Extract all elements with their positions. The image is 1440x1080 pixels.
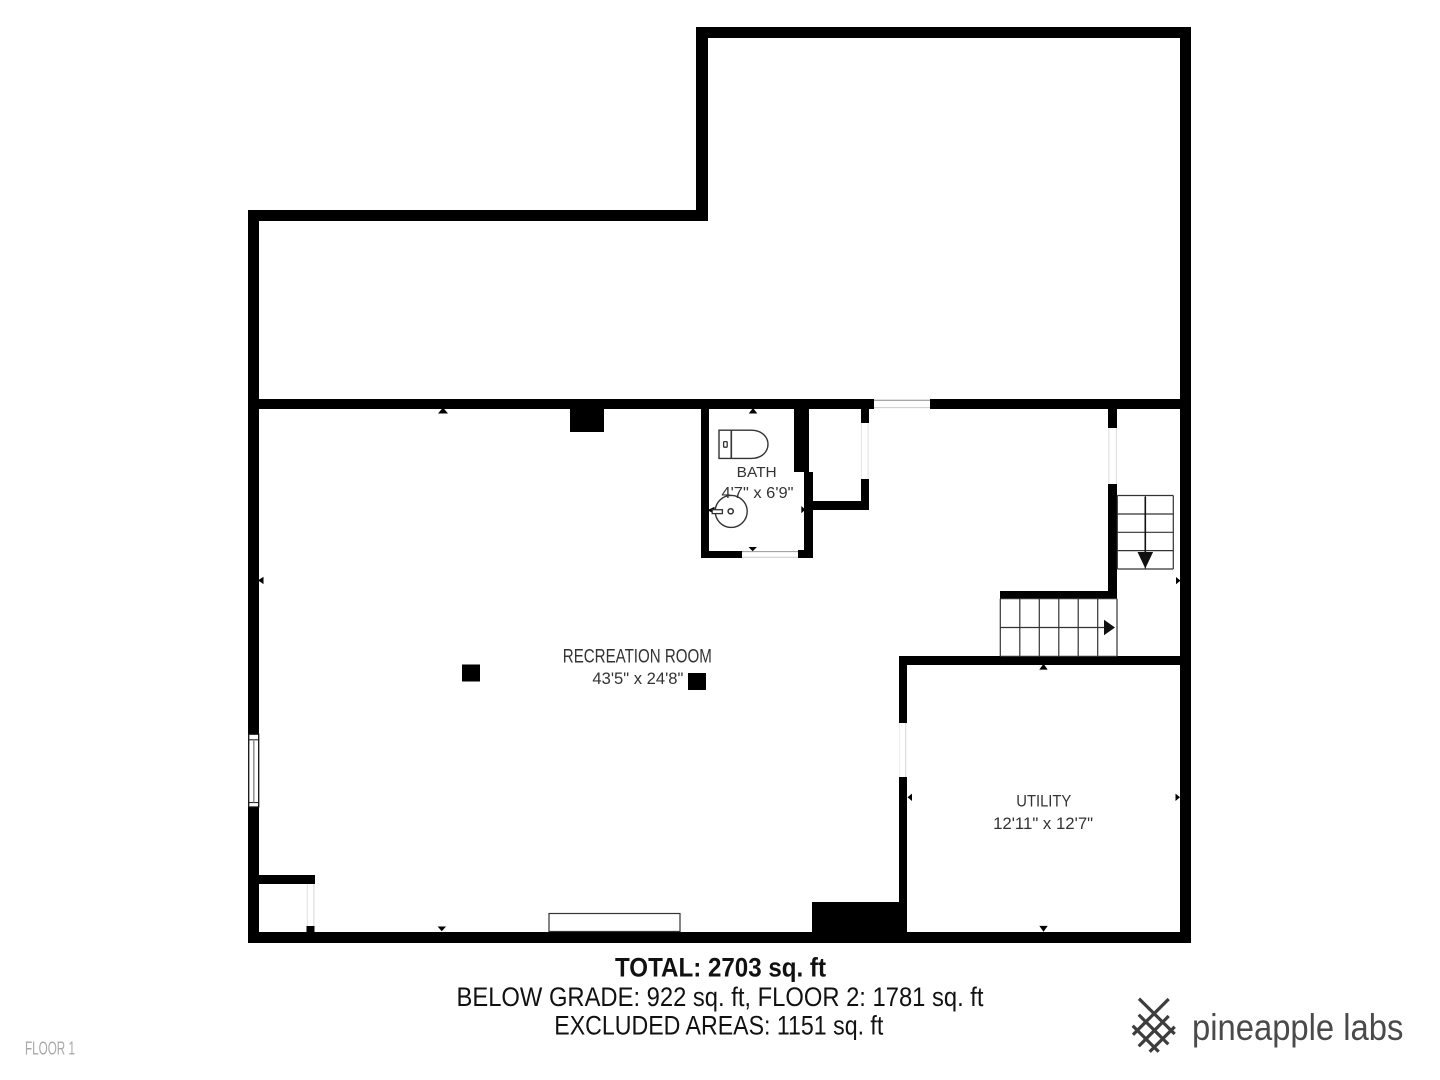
svg-text:pineapple labs: pineapple labs bbox=[1192, 1007, 1403, 1048]
svg-text:4'7" x 6'9": 4'7" x 6'9" bbox=[722, 485, 794, 502]
svg-text:TOTAL: 2703 sq. ft: TOTAL: 2703 sq. ft bbox=[615, 952, 826, 982]
svg-text:BATH: BATH bbox=[737, 465, 777, 481]
svg-text:BELOW GRADE: 922 sq. ft, FLOOR: BELOW GRADE: 922 sq. ft, FLOOR 2: 1781 s… bbox=[457, 982, 984, 1012]
svg-text:UTILITY: UTILITY bbox=[1016, 791, 1071, 810]
svg-text:EXCLUDED AREAS: 1151 sq. ft: EXCLUDED AREAS: 1151 sq. ft bbox=[554, 1011, 883, 1041]
svg-text:RECREATION ROOM: RECREATION ROOM bbox=[563, 647, 712, 668]
svg-text:FLOOR 1: FLOOR 1 bbox=[25, 1039, 75, 1059]
svg-text:12'11" x 12'7": 12'11" x 12'7" bbox=[993, 814, 1093, 833]
svg-text:43'5" x 24'8": 43'5" x 24'8" bbox=[592, 670, 683, 688]
